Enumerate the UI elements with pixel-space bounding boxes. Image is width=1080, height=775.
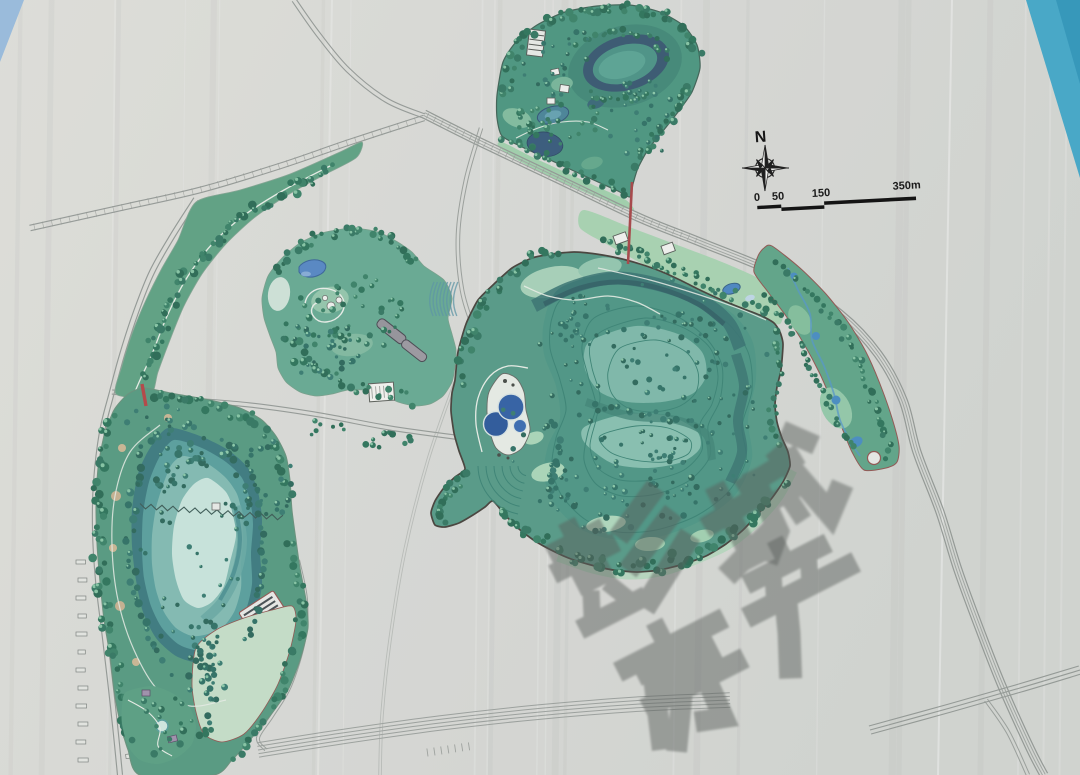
svg-text:350m: 350m xyxy=(892,179,921,192)
svg-text:0: 0 xyxy=(754,192,761,204)
svg-text:150: 150 xyxy=(812,187,831,200)
svg-text:N: N xyxy=(754,129,767,147)
svg-text:50: 50 xyxy=(772,190,785,203)
